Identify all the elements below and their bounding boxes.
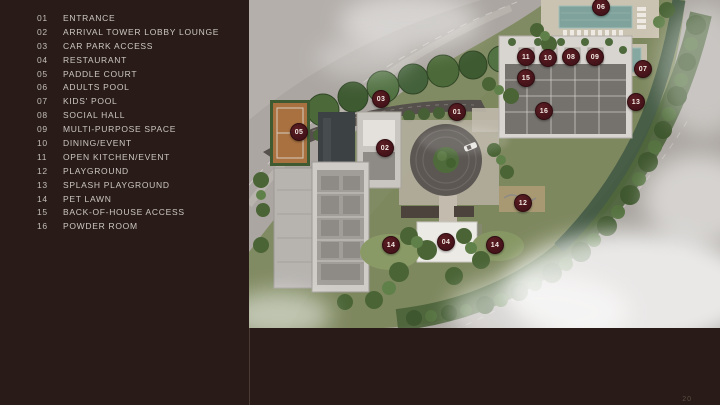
page-number: 20 [682,396,692,403]
bottom-bar [249,328,720,405]
legend-item-number: 16 [37,220,63,234]
legend-panel: 01ENTRANCE 02ARRIVAL TOWER LOBBY LOUNGE … [0,0,249,405]
legend-item-label: ARRIVAL TOWER LOBBY LOUNGE [63,27,219,37]
legend-item-number: 09 [37,123,63,137]
legend-item-label: BACK-OF-HOUSE ACCESS [63,207,185,217]
legend-item-number: 11 [37,151,63,165]
divider-line [249,328,250,405]
legend-item-number: 12 [37,165,63,179]
legend-item-number: 02 [37,26,63,40]
legend-item-label: PADDLE COURT [63,69,137,79]
legend-item: 13SPLASH PLAYGROUND [0,179,249,193]
legend-item-number: 01 [37,12,63,26]
legend-item-label: SOCIAL HALL [63,110,125,120]
legend-item: 08SOCIAL HALL [0,109,249,123]
brochure-page: 01ENTRANCE 02ARRIVAL TOWER LOBBY LOUNGE … [0,0,720,405]
legend-item: 12PLAYGROUND [0,165,249,179]
legend-item: 01ENTRANCE [0,12,249,26]
legend-item-number: 13 [37,179,63,193]
legend-item-label: RESTAURANT [63,55,127,65]
site-plan-rendering [249,0,720,328]
legend-item-label: ADULTS POOL [63,82,130,92]
legend-item: 16POWDER ROOM [0,220,249,234]
legend-item-label: PLAYGROUND [63,166,129,176]
legend-item: 11OPEN KITCHEN/EVENT [0,151,249,165]
legend-item-label: KIDS' POOL [63,96,117,106]
legend-item-number: 07 [37,95,63,109]
legend-item: 02ARRIVAL TOWER LOBBY LOUNGE [0,26,249,40]
legend-item: 06ADULTS POOL [0,81,249,95]
legend-item-number: 05 [37,68,63,82]
legend-item-label: CAR PARK ACCESS [63,41,153,51]
legend-item-label: DINING/EVENT [63,138,132,148]
legend-item-label: ENTRANCE [63,13,115,23]
legend-item-number: 08 [37,109,63,123]
legend-item-label: SPLASH PLAYGROUND [63,180,170,190]
legend-item: 03CAR PARK ACCESS [0,40,249,54]
legend-item: 09MULTI-PURPOSE SPACE [0,123,249,137]
legend-item: 04RESTAURANT [0,54,249,68]
legend-item-label: MULTI-PURPOSE SPACE [63,124,176,134]
site-plan-illustration [249,0,720,328]
legend-item-number: 10 [37,137,63,151]
legend-item-label: PET LAWN [63,194,112,204]
legend-item-number: 14 [37,193,63,207]
legend-item: 15BACK-OF-HOUSE ACCESS [0,206,249,220]
legend-item: 14PET LAWN [0,193,249,207]
legend-item: 05PADDLE COURT [0,68,249,82]
legend-list: 01ENTRANCE 02ARRIVAL TOWER LOBBY LOUNGE … [0,12,249,234]
legend-item-label: POWDER ROOM [63,221,138,231]
legend-item: 07KIDS' POOL [0,95,249,109]
legend-item-number: 15 [37,206,63,220]
legend-item-label: OPEN KITCHEN/EVENT [63,152,170,162]
legend-item-number: 03 [37,40,63,54]
legend-item: 10DINING/EVENT [0,137,249,151]
legend-item-number: 04 [37,54,63,68]
legend-item-number: 06 [37,81,63,95]
